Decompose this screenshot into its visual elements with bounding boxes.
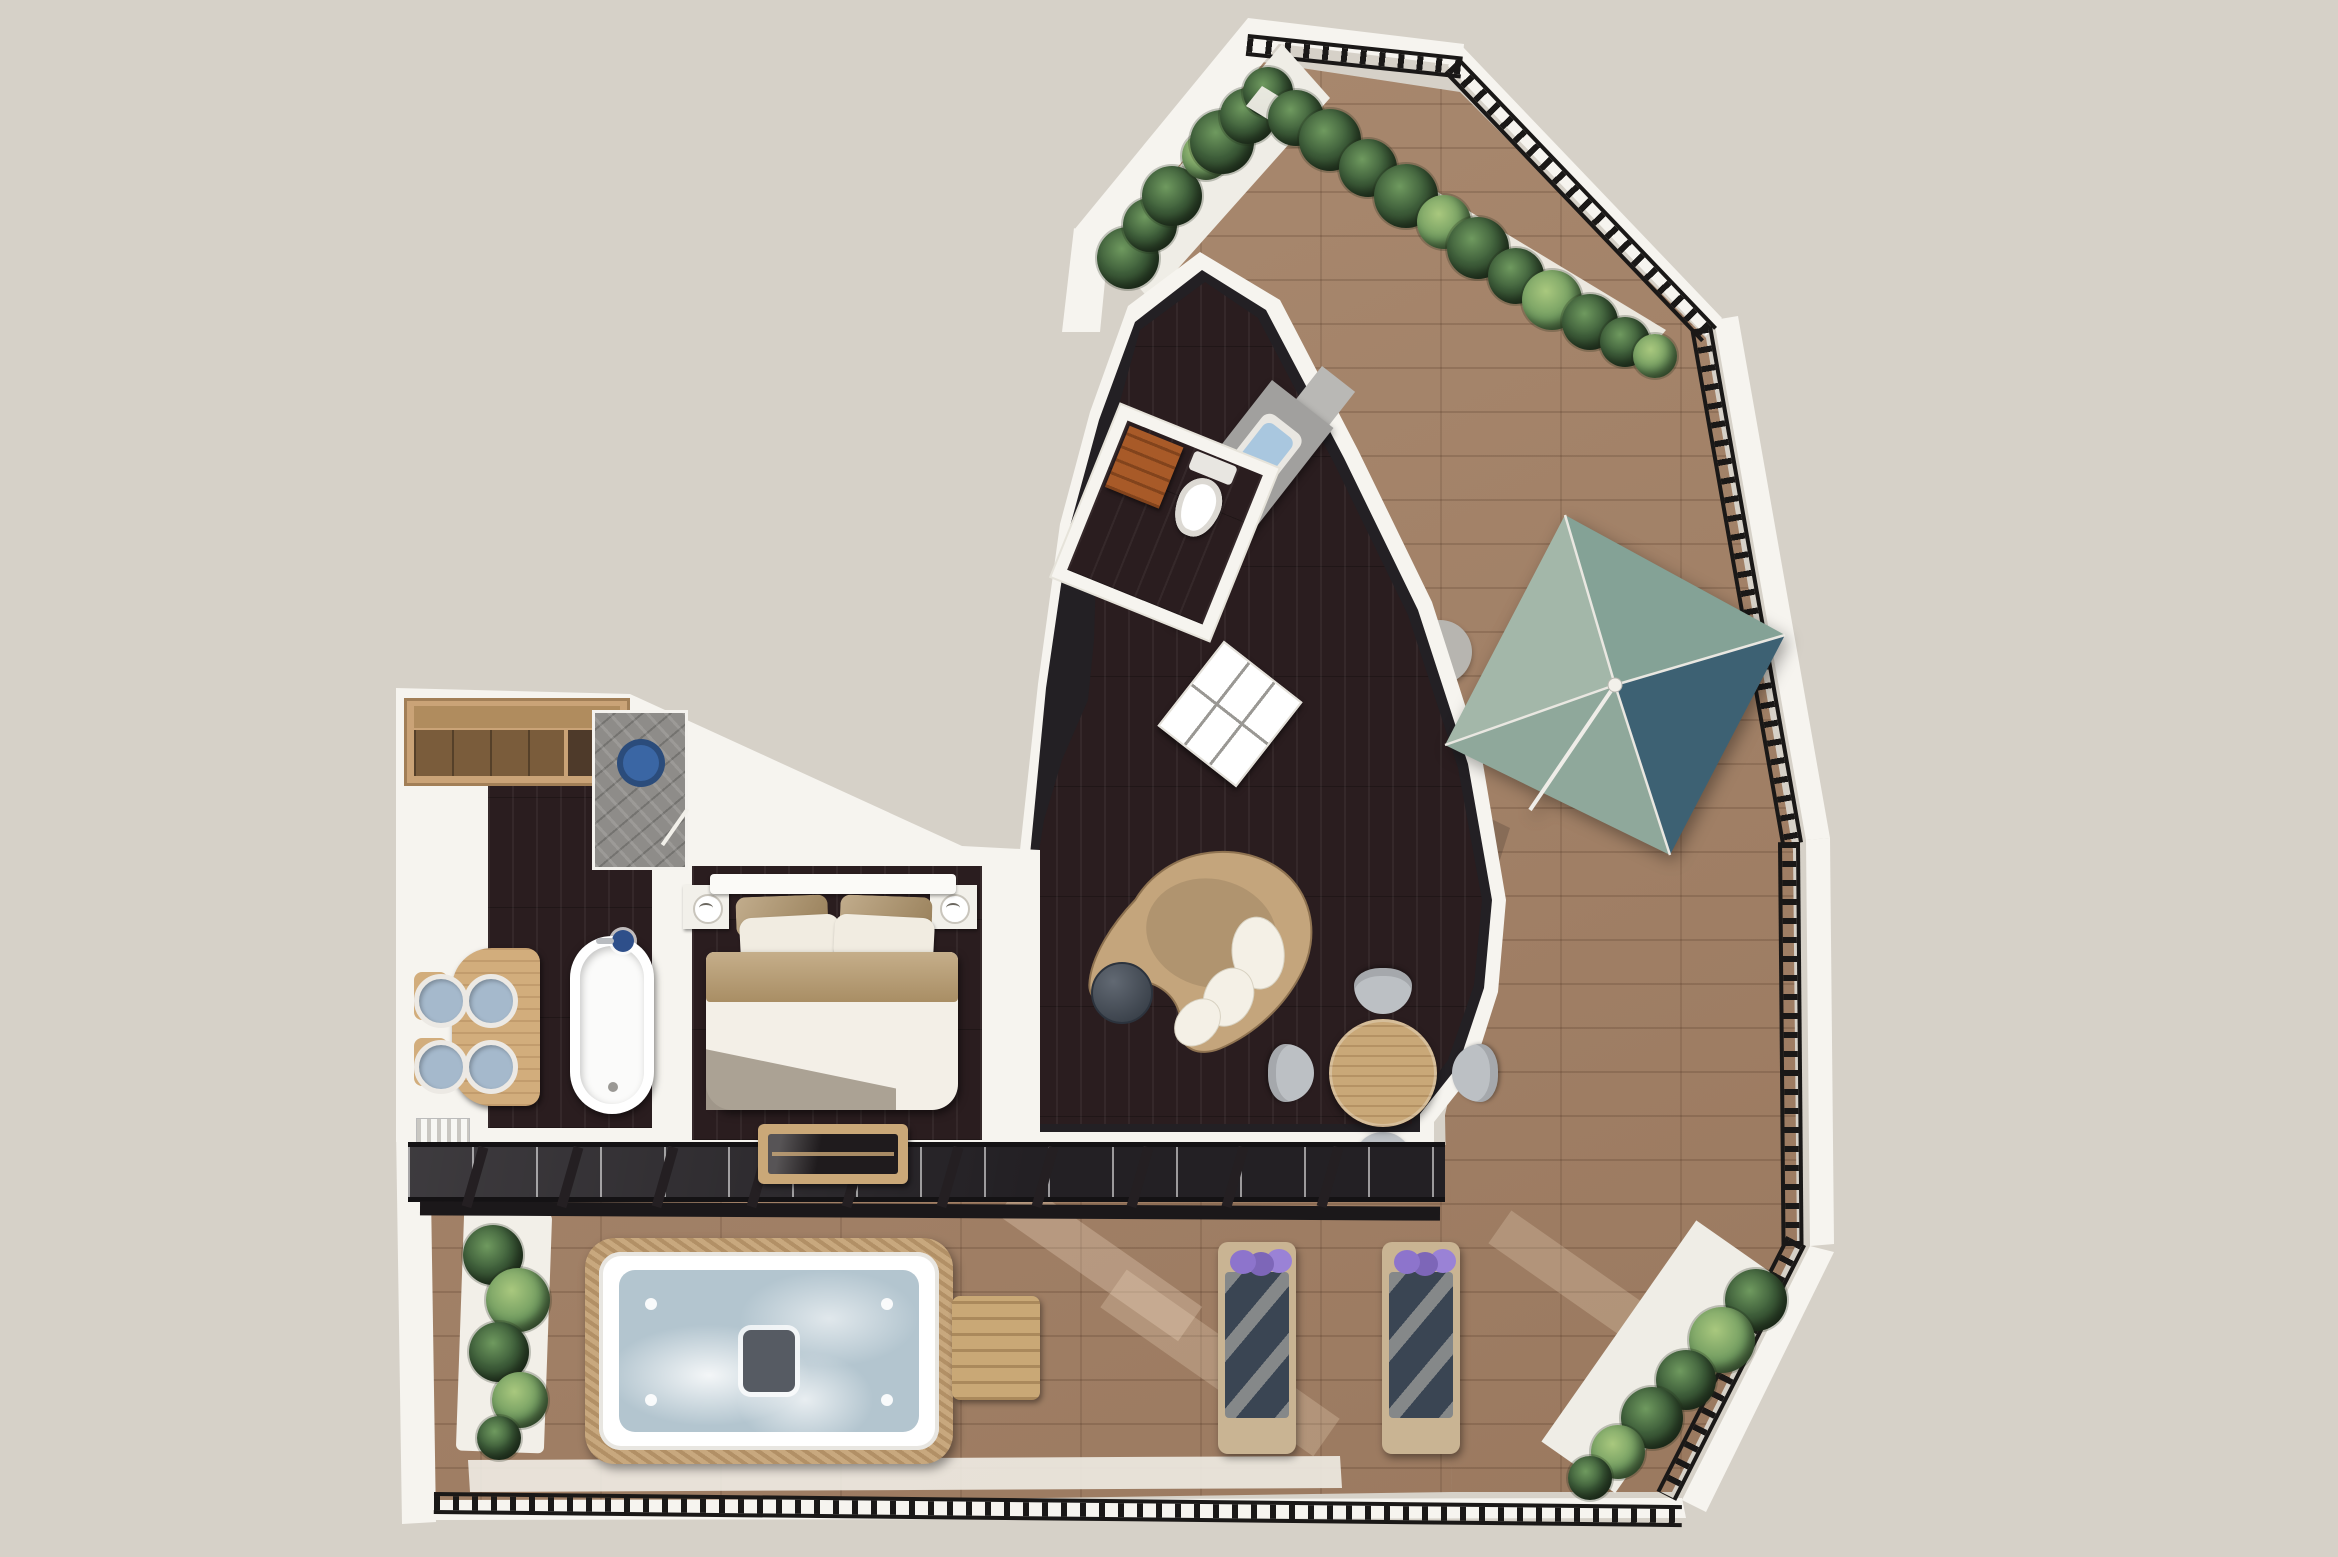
shower-head [617, 739, 665, 787]
bathtub-drain [608, 1082, 618, 1092]
bed-headboard [710, 874, 956, 894]
shower [592, 710, 688, 870]
vanity-basin [414, 974, 468, 1028]
hot-tub-control [743, 1330, 795, 1392]
decor-squiggle [699, 903, 713, 913]
sun-lounger [1218, 1242, 1296, 1454]
parasol [1435, 505, 1795, 865]
hot-tub-wicker-surround [585, 1238, 953, 1464]
hot-tub-side-table [952, 1296, 1040, 1400]
floor-plan-stage [0, 0, 2338, 1557]
shrub [477, 1416, 521, 1460]
vanity-basin [464, 1040, 518, 1094]
lounger-mat [1225, 1272, 1289, 1418]
railing-east-lower [1778, 842, 1804, 1246]
hot-tub-jet [881, 1298, 893, 1310]
bathtub-basin [580, 946, 644, 1104]
coffee-table [1091, 962, 1153, 1024]
lounger-flowers [1394, 1250, 1420, 1274]
bed-bench [758, 1124, 908, 1184]
vanity-basin [414, 1040, 468, 1094]
dining-table [1329, 1019, 1437, 1127]
bench-slat [772, 1152, 894, 1156]
tub-faucet-spout [596, 938, 614, 944]
wardrobe-interior [414, 730, 564, 776]
hot-tub-jet [645, 1394, 657, 1406]
bed-duvet [706, 952, 958, 1110]
hot-tub-jet [645, 1298, 657, 1310]
lounger-flowers [1230, 1250, 1256, 1274]
decor-squiggle [946, 903, 960, 913]
shrub [1633, 334, 1677, 378]
tub-faucet [612, 930, 634, 952]
shrub [1568, 1456, 1612, 1500]
vanity-basin [464, 974, 518, 1028]
wardrobe-shelf [414, 706, 620, 728]
lounger-mat [1389, 1272, 1453, 1418]
sun-lounger [1382, 1242, 1460, 1454]
shower-glass-door [661, 808, 690, 846]
hot-tub-jet [881, 1394, 893, 1406]
bed-blanket-fold [706, 952, 958, 1002]
bed-throw [706, 1012, 896, 1110]
parasol-hub [1608, 678, 1622, 692]
bathtub [570, 936, 654, 1114]
